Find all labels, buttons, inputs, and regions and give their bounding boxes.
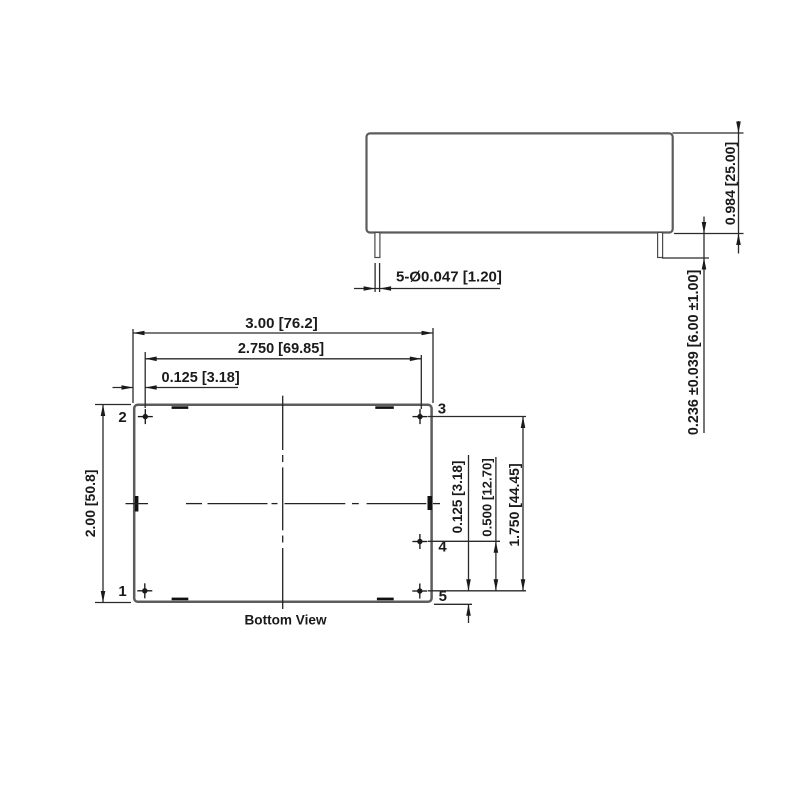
svg-text:0.236 ±0.039 [6.00 ±1.00]: 0.236 ±0.039 [6.00 ±1.00]	[686, 270, 702, 435]
svg-text:0.984 [25.00]: 0.984 [25.00]	[722, 142, 738, 225]
svg-text:0.125 [3.18]: 0.125 [3.18]	[162, 370, 240, 386]
svg-text:2.00 [50.8]: 2.00 [50.8]	[82, 470, 98, 538]
svg-text:Bottom View: Bottom View	[244, 613, 326, 628]
svg-text:3.00 [76.2]: 3.00 [76.2]	[245, 315, 318, 332]
svg-text:2: 2	[118, 409, 126, 426]
svg-text:1.750 [44.45]: 1.750 [44.45]	[506, 463, 522, 546]
svg-text:0.125 [3.18]: 0.125 [3.18]	[450, 461, 465, 534]
svg-text:5-Ø0.047 [1.20]: 5-Ø0.047 [1.20]	[396, 269, 502, 286]
svg-text:2.750 [69.85]: 2.750 [69.85]	[238, 341, 324, 357]
svg-text:0.500 [12.70]: 0.500 [12.70]	[480, 458, 495, 536]
svg-text:1: 1	[118, 583, 126, 600]
svg-text:3: 3	[438, 401, 446, 418]
